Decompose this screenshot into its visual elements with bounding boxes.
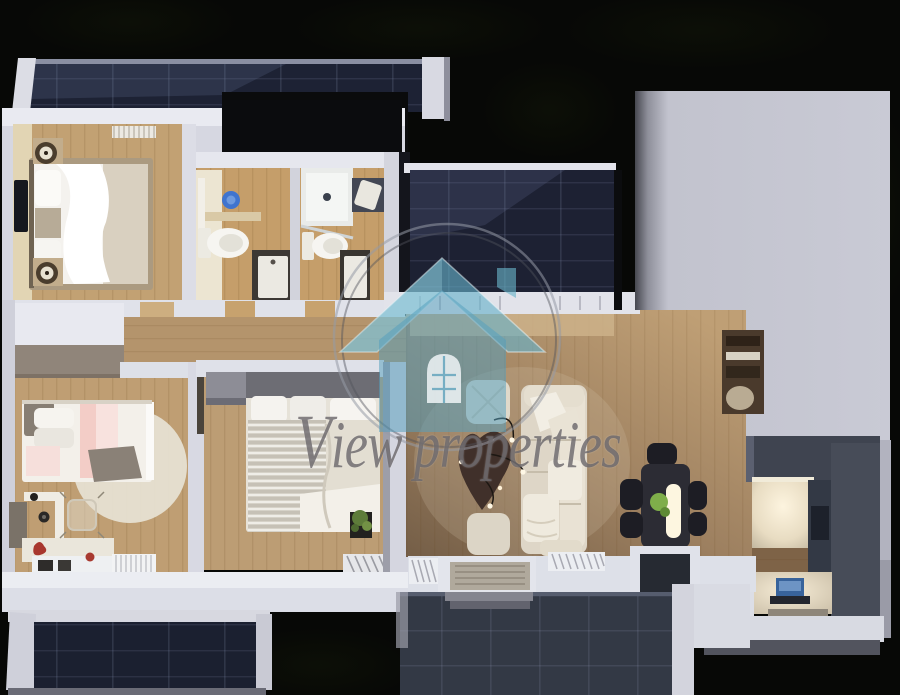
svg-text:View properties: View properties [295,400,621,484]
